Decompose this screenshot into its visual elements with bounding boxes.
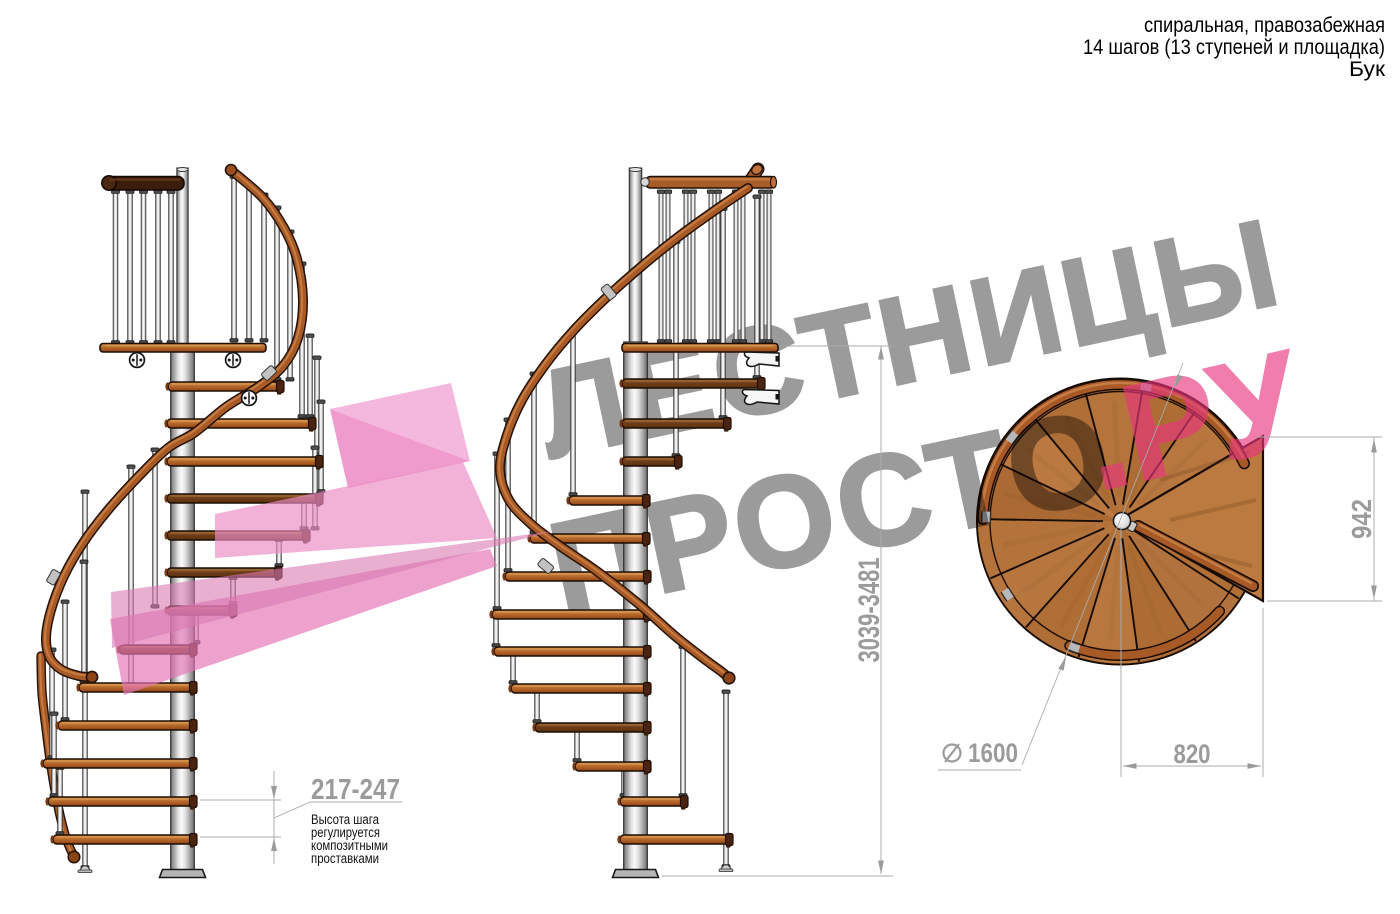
- svg-text:1600: 1600: [968, 738, 1018, 768]
- svg-text:942: 942: [1346, 499, 1377, 539]
- svg-text:проставками: проставками: [311, 851, 379, 866]
- svg-text:14 шагов (13 ступеней и площад: 14 шагов (13 ступеней и площадка): [1083, 36, 1385, 59]
- svg-text:820: 820: [1174, 739, 1211, 769]
- svg-text:3039-3481: 3039-3481: [853, 558, 886, 663]
- svg-text:Бук: Бук: [1349, 58, 1386, 81]
- svg-text:217-247: 217-247: [311, 774, 400, 806]
- svg-text:спиральная, правозабежная: спиральная, правозабежная: [1144, 14, 1385, 37]
